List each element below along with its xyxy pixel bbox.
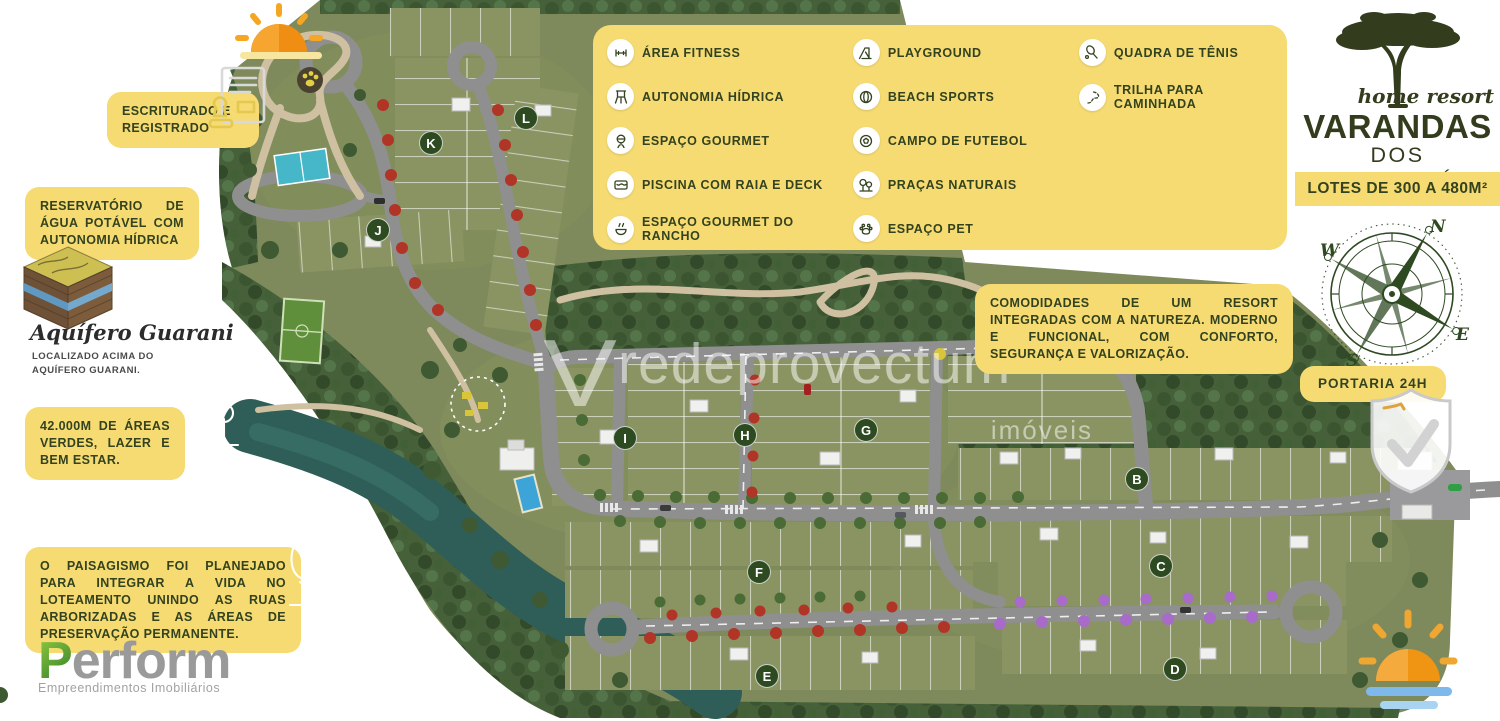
rancho-bowl-icon [607, 216, 634, 243]
soccer-field [280, 299, 324, 364]
block-badge-C: C [1149, 554, 1173, 578]
beach-ball-icon [853, 83, 880, 110]
amenity-campo-futebol: CAMPO DE FUTEBOL [853, 127, 1069, 154]
amenity-espaco-pet: ESPAÇO PET [853, 215, 1069, 242]
masterplan-poster: V redeprovectum imóveis K L J I H G F E … [0, 0, 1500, 721]
amenity-pracas-naturais: PRAÇAS NATURAIS [853, 171, 1069, 198]
block-badge-B: B [1125, 467, 1149, 491]
amenity-gourmet-rancho: ESPAÇO GOURMET DO RANCHO [607, 215, 843, 243]
compass-n: N [1429, 217, 1447, 237]
block-badge-H: H [733, 423, 757, 447]
tennis-racket-icon [1079, 39, 1106, 66]
pet-area [297, 67, 323, 93]
amenity-beach-sports: BEACH SPORTS [853, 83, 1069, 110]
sunset-icon [1348, 585, 1468, 715]
block-badge-F: F [747, 560, 771, 584]
sunrise-icon [228, 0, 330, 64]
pool-icon [607, 171, 634, 198]
park-trees-icon [853, 171, 880, 198]
amenity-playground: PLAYGROUND [853, 39, 1069, 66]
comodidades-callout: COMODIDADES DE UM RESORT INTEGRADAS COM … [975, 284, 1293, 374]
deed-stamp-icon [206, 64, 268, 143]
lot-size-banner: LOTES DE 300 A 480M² [1295, 172, 1500, 206]
compass-w: W [1320, 241, 1341, 261]
playground-icon [853, 39, 880, 66]
brand-script: home resort [1295, 84, 1494, 108]
aquifero-subtitle: LOCALIZADO ACIMA DO AQUÍFERO GUARANI. [32, 350, 187, 379]
amenity-area-fitness: ÁREA FITNESS [607, 39, 843, 66]
amenity-espaco-gourmet: ESPAÇO GOURMET [607, 127, 843, 154]
block-badge-K: K [419, 131, 443, 155]
amenities-panel: ÁREA FITNESS AUTONOMIA HÍDRICA ESPAÇO GO… [593, 25, 1287, 250]
aquifero-title: Aquífero Guarani [30, 320, 234, 345]
compass-rose-icon: N W S E [1308, 210, 1476, 378]
amenity-trilha: TRILHA PARA CAMINHADA [1079, 83, 1287, 111]
dumbbell-icon [607, 39, 634, 66]
tennis-court [274, 149, 330, 186]
security-shield-icon [1366, 386, 1456, 496]
block-badge-J: J [366, 218, 390, 242]
amenity-piscina: PISCINA COM RAIA E DECK [607, 171, 843, 198]
statue-marker [934, 348, 946, 360]
grill-icon [607, 127, 634, 154]
preservation-trees-icon [286, 523, 374, 618]
developer-logo: Perform Empreendimentos Imobiliários [38, 638, 258, 695]
compass-e: E [1455, 325, 1470, 345]
aquifer-cube-illustration [22, 245, 114, 331]
areas-verdes-callout: 42.000M DE ÁREAS VERDES, LAZER E BEM EST… [25, 407, 185, 480]
block-badge-E: E [755, 664, 779, 688]
block-badge-L: L [514, 106, 538, 130]
block-badge-G: G [854, 418, 878, 442]
brand-name-line1: VARANDAS [1295, 110, 1500, 143]
amenity-autonomia-hidrica: AUTONOMIA HÍDRICA [607, 83, 843, 110]
block-badge-D: D [1163, 657, 1187, 681]
brand-logo: home resort VARANDAS DOS JEQUITIBÁS [1295, 6, 1500, 195]
trail-icon [1079, 84, 1106, 111]
soccer-ball-icon [853, 127, 880, 154]
water-tower-icon [607, 83, 634, 110]
amenity-quadra-tenis: QUADRA DE TÊNIS [1079, 39, 1287, 66]
paw-icon [853, 215, 880, 242]
block-badge-I: I [613, 426, 637, 450]
green-trees-icon [180, 385, 252, 460]
